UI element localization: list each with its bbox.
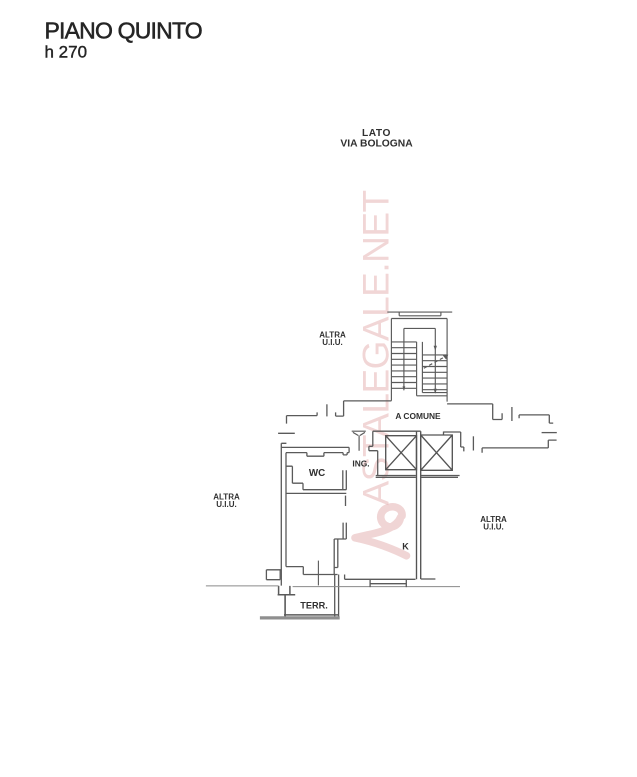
svg-text:WC: WC xyxy=(309,468,325,479)
svg-text:A COMUNE: A COMUNE xyxy=(395,411,441,421)
svg-text:ING.: ING. xyxy=(352,458,369,468)
svg-text:VIA BOLOGNA: VIA BOLOGNA xyxy=(340,138,413,149)
svg-text:U.I.U.: U.I.U. xyxy=(216,500,236,509)
svg-text:h 270: h 270 xyxy=(45,43,88,62)
svg-text:LATO: LATO xyxy=(362,128,391,139)
svg-text:PIANO QUINTO: PIANO QUINTO xyxy=(45,18,202,44)
svg-text:U.I.U.: U.I.U. xyxy=(322,338,342,347)
svg-text:K: K xyxy=(402,542,409,552)
svg-text:U.I.U.: U.I.U. xyxy=(483,522,503,531)
svg-text:TERR.: TERR. xyxy=(300,600,328,610)
